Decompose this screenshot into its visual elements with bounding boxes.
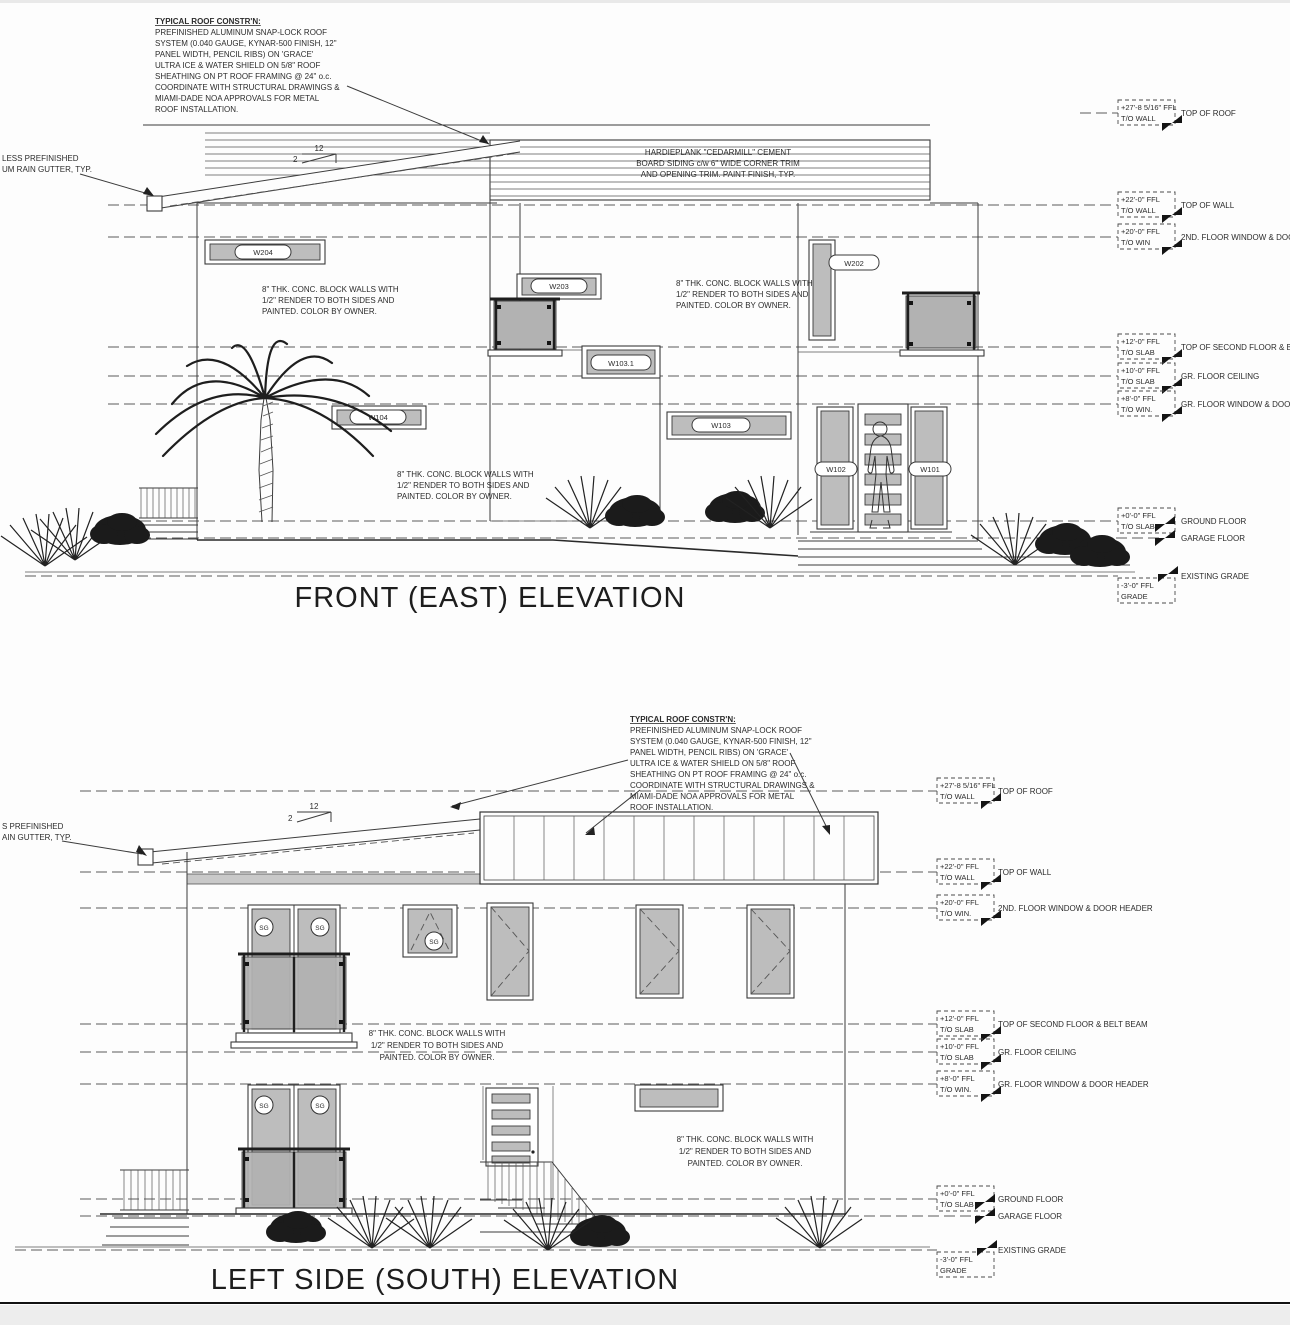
elevation-marker-icon <box>975 1208 995 1224</box>
svg-text:W103: W103 <box>711 421 731 430</box>
elevation-marker-icon <box>1162 115 1182 131</box>
svg-text:AIN GUTTER, TYP.: AIN GUTTER, TYP. <box>2 833 72 842</box>
elevation-marker-icon <box>1162 239 1182 255</box>
balcony-railing-right <box>900 293 984 356</box>
svg-text:W204: W204 <box>253 248 273 257</box>
svg-text:+20'-0" FFL: +20'-0" FFL <box>940 898 979 907</box>
svg-text:MIAMI-DADE NOA APPROVALS FOR M: MIAMI-DADE NOA APPROVALS FOR METAL <box>155 94 320 103</box>
svg-text:PANEL WIDTH, PENCIL RIBS) ON ': PANEL WIDTH, PENCIL RIBS) ON 'GRACE' <box>155 50 314 59</box>
svg-text:BOARD SIDING c/w 6" WIDE CORNE: BOARD SIDING c/w 6" WIDE CORNER TRIM <box>636 159 800 168</box>
drawing-sheet: +27'-8 5/16" FFL T/O WALL TOP OF ROOF +2… <box>0 0 1290 1325</box>
svg-text:1/2" RENDER TO BOTH SIDES AND: 1/2" RENDER TO BOTH SIDES AND <box>676 290 809 299</box>
note-heading: TYPICAL ROOF CONSTR'N: <box>155 17 261 26</box>
window-w103: W103 <box>667 412 791 439</box>
front-roof <box>143 125 930 211</box>
svg-text:TOP OF SECOND FLOOR & BELT BEA: TOP OF SECOND FLOOR & BELT BEAM <box>1181 343 1290 352</box>
svg-text:T/O WIN.: T/O WIN. <box>940 1085 971 1094</box>
svg-text:-3'-0" FFL: -3'-0" FFL <box>940 1255 973 1264</box>
elevation-marker-icon <box>1155 516 1175 532</box>
svg-text:SG: SG <box>315 1103 324 1110</box>
window-w202: W202 <box>809 240 879 340</box>
slope-rise: 2 <box>288 814 293 823</box>
svg-text:MIAMI-DADE NOA APPROVALS FOR M: MIAMI-DADE NOA APPROVALS FOR METAL <box>630 792 795 801</box>
gutter-note-front: LESS PREFINISHED UM RAIN GUTTER, TYP. <box>2 154 154 196</box>
svg-text:EXISTING GRADE: EXISTING GRADE <box>1181 572 1249 581</box>
window-w104: W104 <box>332 406 426 429</box>
svg-text:T/O WIN: T/O WIN <box>1121 238 1150 247</box>
svg-text:+10'-0" FFL: +10'-0" FFL <box>940 1042 979 1051</box>
balcony-doors-upper: SG SG <box>231 905 357 1048</box>
siding-note: HARDIEPLANK "CEDARMILL" CEMENT BOARD SID… <box>636 148 800 179</box>
slope-run: 12 <box>310 802 319 811</box>
svg-text:GR. FLOOR WINDOW & DOOR HEADER: GR. FLOOR WINDOW & DOOR HEADER <box>998 1080 1149 1089</box>
elevation-marker-icon <box>1162 378 1182 394</box>
svg-text:TOP OF ROOF: TOP OF ROOF <box>998 787 1053 796</box>
casement-window-2 <box>636 905 683 998</box>
svg-text:T/O WIN.: T/O WIN. <box>1121 405 1152 414</box>
svg-text:GROUND FLOOR: GROUND FLOOR <box>1181 517 1247 526</box>
block-wall-note-5: 8" THK. CONC. BLOCK WALLS WITH 1/2" REND… <box>677 1135 814 1168</box>
svg-text:1/2" RENDER TO BOTH SIDES AND: 1/2" RENDER TO BOTH SIDES AND <box>397 481 530 490</box>
leader-arrow <box>479 135 489 144</box>
svg-text:SHEATHING ON PT ROOF FRAMING @: SHEATHING ON PT ROOF FRAMING @ 24" o.c. <box>630 770 806 779</box>
sheet-bottom-strip <box>0 1305 1290 1325</box>
svg-text:T/O WALL: T/O WALL <box>940 792 975 801</box>
svg-text:W101: W101 <box>920 465 940 474</box>
block-wall-note-2: 8" THK. CONC. BLOCK WALLS WITH 1/2" REND… <box>676 279 813 310</box>
svg-text:+10'-0" FFL: +10'-0" FFL <box>1121 366 1160 375</box>
palm-tree <box>156 341 391 522</box>
sheet-top-edge <box>0 0 1290 3</box>
level-label: TOP OF ROOF <box>1181 109 1236 118</box>
note-heading: TYPICAL ROOF CONSTR'N: <box>630 715 736 724</box>
svg-text:1/2" RENDER TO BOTH SIDES AND: 1/2" RENDER TO BOTH SIDES AND <box>679 1147 812 1156</box>
svg-text:+22'-0" FFL: +22'-0" FFL <box>1121 195 1160 204</box>
svg-text:+20'-0" FFL: +20'-0" FFL <box>1121 227 1160 236</box>
svg-text:T/O SLAB: T/O SLAB <box>1121 522 1155 531</box>
front-vegetation <box>1 341 1130 567</box>
left-ground <box>15 1214 930 1247</box>
left-roof <box>138 812 878 884</box>
glass-railing <box>236 1149 352 1214</box>
elevation-marker-icon <box>1162 207 1182 223</box>
left-vegetation <box>266 1196 862 1250</box>
svg-text:GR. FLOOR WINDOW & DOOR HEADER: GR. FLOOR WINDOW & DOOR HEADER <box>1181 400 1290 409</box>
svg-text:ULTRA ICE & WATER SHIELD ON 5/: ULTRA ICE & WATER SHIELD ON 5/8" ROOF <box>155 61 321 70</box>
palmetto <box>386 1196 472 1248</box>
block-wall-note-3: 8" THK. CONC. BLOCK WALLS WITH 1/2" REND… <box>397 470 534 501</box>
svg-text:T/O SLAB: T/O SLAB <box>940 1200 974 1209</box>
left-elevation-title: LEFT SIDE (SOUTH) ELEVATION <box>211 1264 680 1296</box>
metal-roof-band <box>480 812 878 884</box>
svg-text:T/O SLAB: T/O SLAB <box>1121 377 1155 386</box>
level-marker-garage-floor: GARAGE FLOOR <box>80 1208 1062 1224</box>
svg-text:SG: SG <box>429 939 438 946</box>
svg-text:COORDINATE WITH STRUCTURAL DRA: COORDINATE WITH STRUCTURAL DRAWINGS & <box>630 781 815 790</box>
gutter-note-left: S PREFINISHED AIN GUTTER, TYP. <box>2 822 147 856</box>
svg-text:SG: SG <box>259 1103 268 1110</box>
roof-fascia <box>158 141 520 208</box>
side-stair-railing <box>102 1170 189 1245</box>
balcony-railing-left <box>488 299 562 356</box>
svg-text:TOP OF WALL: TOP OF WALL <box>998 868 1052 877</box>
left-side-elevation: +27'-8 5/16" FFL T/O WALL TOP OF ROOF +2… <box>2 715 1153 1296</box>
front-ground <box>25 488 1135 572</box>
level-value: +27'-8 5/16" FFL <box>1121 103 1177 112</box>
window-w103-1: W103.1 <box>582 346 660 378</box>
svg-text:UM RAIN GUTTER, TYP.: UM RAIN GUTTER, TYP. <box>2 165 92 174</box>
balcony-doors-lower: SG SG <box>236 1085 352 1214</box>
awning-window: SG <box>403 905 457 957</box>
svg-text:2ND. FLOOR WINDOW & DOOR HEADE: 2ND. FLOOR WINDOW & DOOR HEADER <box>998 904 1153 913</box>
svg-text:AND OPENING TRIM. PAINT FINISH: AND OPENING TRIM. PAINT FINISH, TYP. <box>641 170 795 179</box>
level-marker-2nd-header: +20'-0" FFL T/O WIN. 2ND. FLOOR WINDOW &… <box>80 895 1153 926</box>
window-w204: W204 <box>205 240 325 264</box>
svg-text:SG: SG <box>315 925 324 932</box>
window-wide-lower <box>635 1085 723 1111</box>
svg-text:PAINTED. COLOR BY OWNER.: PAINTED. COLOR BY OWNER. <box>380 1053 495 1062</box>
level-marker-second-floor: +12'-0" FFL T/O SLAB TOP OF SECOND FLOOR… <box>108 334 1290 365</box>
svg-text:PAINTED. COLOR BY OWNER.: PAINTED. COLOR BY OWNER. <box>688 1159 803 1168</box>
svg-text:GARAGE FLOOR: GARAGE FLOOR <box>1181 534 1245 543</box>
casement-window-3 <box>747 905 794 998</box>
svg-text:GROUND FLOOR: GROUND FLOOR <box>998 1195 1064 1204</box>
svg-text:LESS PREFINISHED: LESS PREFINISHED <box>2 154 79 163</box>
entry-door-assembly: W102 W101 <box>810 404 952 532</box>
casement-window-1 <box>487 903 533 1000</box>
svg-text:1/2" RENDER TO BOTH SIDES AND: 1/2" RENDER TO BOTH SIDES AND <box>262 296 395 305</box>
svg-text:T/O WIN.: T/O WIN. <box>940 909 971 918</box>
svg-text:ROOF INSTALLATION.: ROOF INSTALLATION. <box>155 105 238 114</box>
block-wall-note-4: 8" THK. CONC. BLOCK WALLS WITH 1/2" REND… <box>369 1029 506 1062</box>
svg-text:W102: W102 <box>826 465 846 474</box>
roof-slope-indicator: 12 2 <box>288 802 331 823</box>
level-marker-gr-ceiling: +10'-0" FFL T/O SLAB GR. FLOOR CEILING <box>80 1039 1076 1070</box>
svg-text:GR. FLOOR CEILING: GR. FLOOR CEILING <box>1181 372 1259 381</box>
svg-text:PREFINISHED ALUMINUM SNAP-LOCK: PREFINISHED ALUMINUM SNAP-LOCK ROOF <box>630 726 802 735</box>
svg-text:GRADE: GRADE <box>940 1266 967 1275</box>
svg-text:T/O WALL: T/O WALL <box>1121 206 1156 215</box>
svg-text:TOP OF WALL: TOP OF WALL <box>1181 201 1235 210</box>
svg-text:-3'-0" FFL: -3'-0" FFL <box>1121 581 1154 590</box>
svg-text:T/O SLAB: T/O SLAB <box>940 1053 974 1062</box>
svg-text:W103.1: W103.1 <box>608 359 634 368</box>
level-marker-top-of-roof: +27'-8 5/16" FFL T/O WALL TOP OF ROOF <box>80 778 1053 809</box>
svg-text:+12'-0" FFL: +12'-0" FFL <box>940 1014 979 1023</box>
svg-text:T/O SLAB: T/O SLAB <box>1121 348 1155 357</box>
svg-text:W202: W202 <box>844 259 864 268</box>
window-w203: W203 <box>517 274 601 299</box>
svg-text:HARDIEPLANK "CEDARMILL" CEMENT: HARDIEPLANK "CEDARMILL" CEMENT <box>645 148 791 157</box>
elevation-marker-icon <box>1155 530 1175 546</box>
svg-text:+12'-0" FFL: +12'-0" FFL <box>1121 337 1160 346</box>
svg-text:T/O SLAB: T/O SLAB <box>940 1025 974 1034</box>
svg-text:GR. FLOOR CEILING: GR. FLOOR CEILING <box>998 1048 1076 1057</box>
glass-railing <box>231 954 357 1048</box>
elevation-drawing: +27'-8 5/16" FFL T/O WALL TOP OF ROOF +2… <box>0 0 1290 1325</box>
svg-text:PAINTED. COLOR BY OWNER.: PAINTED. COLOR BY OWNER. <box>397 492 512 501</box>
svg-text:W203: W203 <box>549 282 569 291</box>
rain-gutter <box>147 196 162 211</box>
palmetto <box>776 1196 862 1248</box>
svg-text:+22'-0" FFL: +22'-0" FFL <box>940 862 979 871</box>
svg-text:+0'-0" FFL: +0'-0" FFL <box>1121 511 1156 520</box>
svg-text:GARAGE FLOOR: GARAGE FLOOR <box>998 1212 1062 1221</box>
svg-text:GRADE: GRADE <box>1121 592 1148 601</box>
elevation-marker-icon <box>975 1194 995 1210</box>
level-marker-top-of-roof: +27'-8 5/16" FFL T/O WALL TOP OF ROOF <box>1080 100 1236 131</box>
level-marker-gr-header: +8'-0" FFL T/O WIN. GR. FLOOR WINDOW & D… <box>80 1071 1149 1102</box>
svg-text:8" THK. CONC. BLOCK WALLS WITH: 8" THK. CONC. BLOCK WALLS WITH <box>397 470 534 479</box>
svg-text:ULTRA ICE & WATER SHIELD ON 5/: ULTRA ICE & WATER SHIELD ON 5/8" ROOF <box>630 759 796 768</box>
svg-text:SHEATHING ON PT ROOF FRAMING @: SHEATHING ON PT ROOF FRAMING @ 24" o.c. <box>155 72 331 81</box>
svg-text:8" THK. CONC. BLOCK WALLS WITH: 8" THK. CONC. BLOCK WALLS WITH <box>677 1135 814 1144</box>
svg-text:2ND. FLOOR WINDOW & DOOR HEADE: 2ND. FLOOR WINDOW & DOOR HEADER <box>1181 233 1290 242</box>
svg-text:1/2" RENDER TO BOTH SIDES AND: 1/2" RENDER TO BOTH SIDES AND <box>371 1041 504 1050</box>
svg-text:+8'-0" FFL: +8'-0" FFL <box>940 1074 975 1083</box>
svg-text:ROOF INSTALLATION.: ROOF INSTALLATION. <box>630 803 713 812</box>
svg-text:PANEL WIDTH, PENCIL RIBS) ON ': PANEL WIDTH, PENCIL RIBS) ON 'GRACE' <box>630 748 789 757</box>
svg-text:EXISTING GRADE: EXISTING GRADE <box>998 1246 1066 1255</box>
svg-text:COORDINATE WITH STRUCTURAL DRA: COORDINATE WITH STRUCTURAL DRAWINGS & <box>155 83 340 92</box>
elevation-marker-icon <box>1162 349 1182 365</box>
svg-text:+27'-8 5/16" FFL: +27'-8 5/16" FFL <box>940 781 996 790</box>
svg-text:8" THK. CONC. BLOCK WALLS WITH: 8" THK. CONC. BLOCK WALLS WITH <box>262 285 399 294</box>
svg-text:+8'-0" FFL: +8'-0" FFL <box>1121 394 1156 403</box>
slope-run: 12 <box>315 144 324 153</box>
side-entry-door <box>486 1088 538 1166</box>
block-wall-note-1: 8" THK. CONC. BLOCK WALLS WITH 1/2" REND… <box>262 285 399 316</box>
svg-text:S PREFINISHED: S PREFINISHED <box>2 822 64 831</box>
svg-text:PAINTED. COLOR BY OWNER.: PAINTED. COLOR BY OWNER. <box>262 307 377 316</box>
level-ref: T/O WALL <box>1121 114 1156 123</box>
shrub <box>605 495 665 527</box>
leader-arrow <box>143 187 154 196</box>
svg-text:PAINTED. COLOR BY OWNER.: PAINTED. COLOR BY OWNER. <box>676 301 791 310</box>
svg-text:8" THK. CONC. BLOCK WALLS WITH: 8" THK. CONC. BLOCK WALLS WITH <box>369 1029 506 1038</box>
svg-text:SYSTEM (0.040 GAUGE, KYNAR-500: SYSTEM (0.040 GAUGE, KYNAR-500 FINISH, 1… <box>630 737 812 746</box>
svg-text:TOP OF SECOND FLOOR & BELT BEA: TOP OF SECOND FLOOR & BELT BEAM <box>998 1020 1148 1029</box>
slope-rise: 2 <box>293 155 298 164</box>
leader-arrow <box>450 802 461 810</box>
svg-text:8" THK. CONC. BLOCK WALLS WITH: 8" THK. CONC. BLOCK WALLS WITH <box>676 279 813 288</box>
svg-text:SYSTEM (0.040 GAUGE, KYNAR-500: SYSTEM (0.040 GAUGE, KYNAR-500 FINISH, 1… <box>155 39 337 48</box>
front-elevation: +27'-8 5/16" FFL T/O WALL TOP OF ROOF +2… <box>1 17 1290 614</box>
svg-text:PREFINISHED ALUMINUM SNAP-LOCK: PREFINISHED ALUMINUM SNAP-LOCK ROOF <box>155 28 327 37</box>
svg-text:+0'-0" FFL: +0'-0" FFL <box>940 1189 975 1198</box>
elevation-marker-icon <box>1162 406 1182 422</box>
svg-text:SG: SG <box>259 925 268 932</box>
svg-text:T/O WALL: T/O WALL <box>940 873 975 882</box>
front-elevation-title: FRONT (EAST) ELEVATION <box>295 582 686 614</box>
